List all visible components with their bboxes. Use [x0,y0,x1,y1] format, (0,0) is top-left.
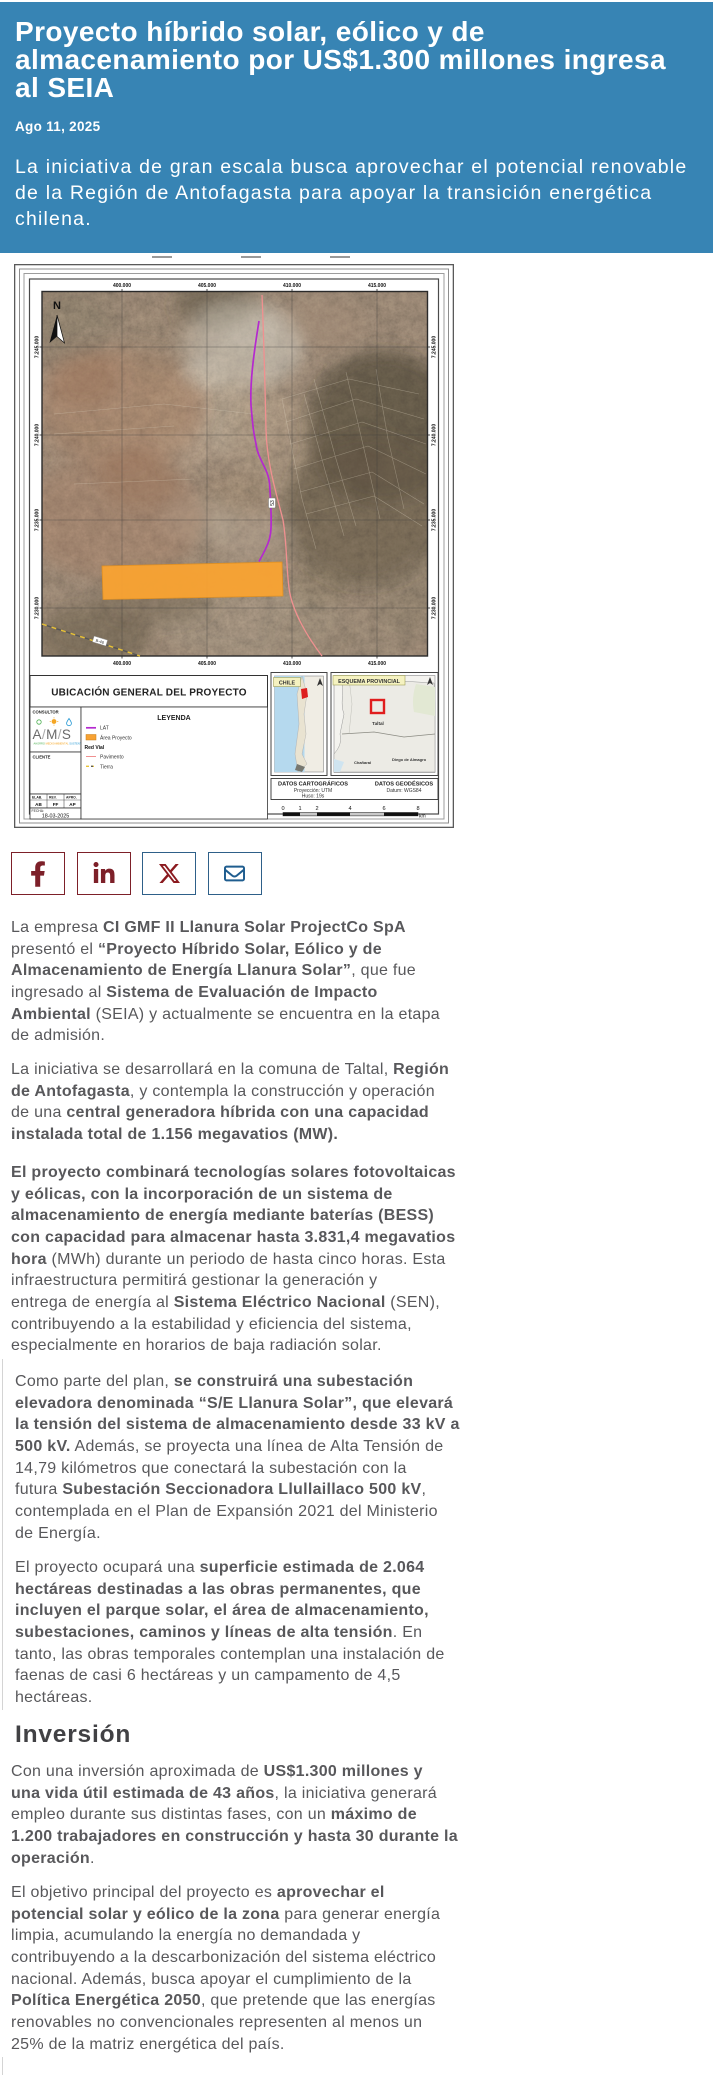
svg-text:Chañaral: Chañaral [354,760,371,765]
svg-text:7.240.000: 7.240.000 [35,424,41,446]
svg-text:APRO.: APRO. [66,796,77,800]
svg-text:18-03-2025: 18-03-2025 [42,814,70,820]
svg-text:km: km [419,814,426,820]
svg-text:FF: FF [53,802,59,807]
svg-text:Huso: 19s: Huso: 19s [302,794,325,800]
svg-text:AHORRO MEDIOAMBIENTAL SUSTENTA: AHORRO MEDIOAMBIENTAL SUSTENTABLE [34,742,89,746]
svg-text:Datum: WGS84: Datum: WGS84 [386,788,421,794]
svg-text:Pavimento: Pavimento [100,755,124,761]
svg-text:REV.: REV. [49,796,57,800]
svg-text:AP: AP [69,802,75,807]
svg-text:FECHA:: FECHA: [32,809,44,813]
svg-text:7.230.000: 7.230.000 [35,597,41,619]
svg-text:DATOS GEODÉSICOS: DATOS GEODÉSICOS [375,780,433,788]
svg-text:410.000: 410.000 [283,283,301,289]
svg-text:7.245.000: 7.245.000 [35,336,41,358]
svg-text:415.000: 415.000 [368,283,386,289]
svg-text:ESQUEMA PROVINCIAL: ESQUEMA PROVINCIAL [338,679,401,685]
svg-text:7.230.000: 7.230.000 [432,597,438,619]
svg-text:0: 0 [281,806,284,812]
svg-text:7.240.000: 7.240.000 [432,424,438,446]
svg-text:CHILE: CHILE [279,681,296,687]
svg-text:Taltal: Taltal [372,721,384,726]
svg-text:4: 4 [348,806,351,812]
svg-text:405.000: 405.000 [198,661,216,667]
svg-text:Tierra: Tierra [100,764,113,770]
svg-text:LAT: LAT [100,726,109,732]
svg-text:6: 6 [382,806,385,812]
svg-text:410.000: 410.000 [283,661,301,667]
svg-text:Diego de Almagro: Diego de Almagro [392,757,427,762]
svg-text:405.000: 405.000 [198,283,216,289]
svg-text:53: 53 [270,500,276,506]
svg-text:CONSULTOR: CONSULTOR [33,710,59,715]
svg-text:N: N [53,300,61,312]
svg-text:7.245.000: 7.245.000 [432,336,438,358]
svg-text:1: 1 [298,806,301,812]
svg-text:A/M/S: A/M/S [33,727,72,742]
svg-text:ELAB.: ELAB. [32,796,42,800]
svg-text:Área Proyecto: Área Proyecto [100,735,132,742]
svg-text:UBICACIÓN GENERAL DEL PROYECTO: UBICACIÓN GENERAL DEL PROYECTO [51,686,246,699]
svg-text:400.000: 400.000 [113,283,131,289]
svg-text:400.000: 400.000 [113,661,131,667]
svg-text:8: 8 [416,806,419,812]
svg-text:LEYENDA: LEYENDA [157,715,190,722]
svg-text:7.235.000: 7.235.000 [35,509,41,531]
svg-text:415.000: 415.000 [368,661,386,667]
svg-text:CLIENTE: CLIENTE [33,755,51,760]
svg-text:7.235.000: 7.235.000 [432,509,438,531]
svg-text:AB: AB [35,802,42,807]
svg-text:2: 2 [315,806,318,812]
svg-text:Red Vial: Red Vial [85,745,105,751]
svg-text:DATOS CARTOGRÁFICOS: DATOS CARTOGRÁFICOS [278,781,348,788]
